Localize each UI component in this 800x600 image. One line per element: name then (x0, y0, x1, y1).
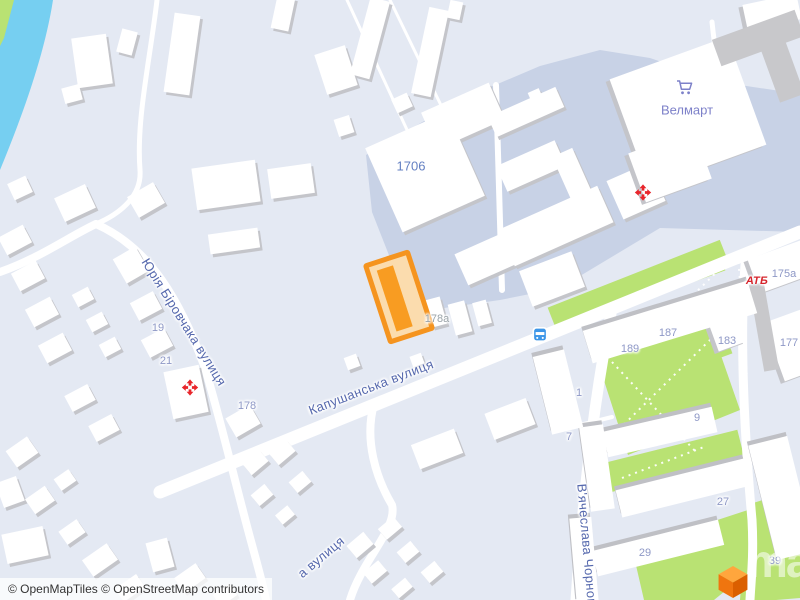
attribution-bar: © OpenMapTiles © OpenStreetMap contribut… (0, 578, 272, 600)
pharmacy-icon-east (635, 184, 652, 206)
maptiler-logo-cube (717, 566, 749, 600)
bus-stop-icon (532, 327, 548, 348)
map-canvas[interactable]: Капушанська вулиця Юрія Біровчака вулиця… (0, 0, 800, 600)
pharmacy-icon-west (182, 379, 199, 401)
attribution-links[interactable]: © OpenMapTiles © OpenStreetMap contribut… (8, 582, 264, 596)
supermarket-cart-icon (676, 80, 694, 101)
river (0, 0, 53, 170)
maptiler-watermark: maptiler (747, 534, 800, 600)
